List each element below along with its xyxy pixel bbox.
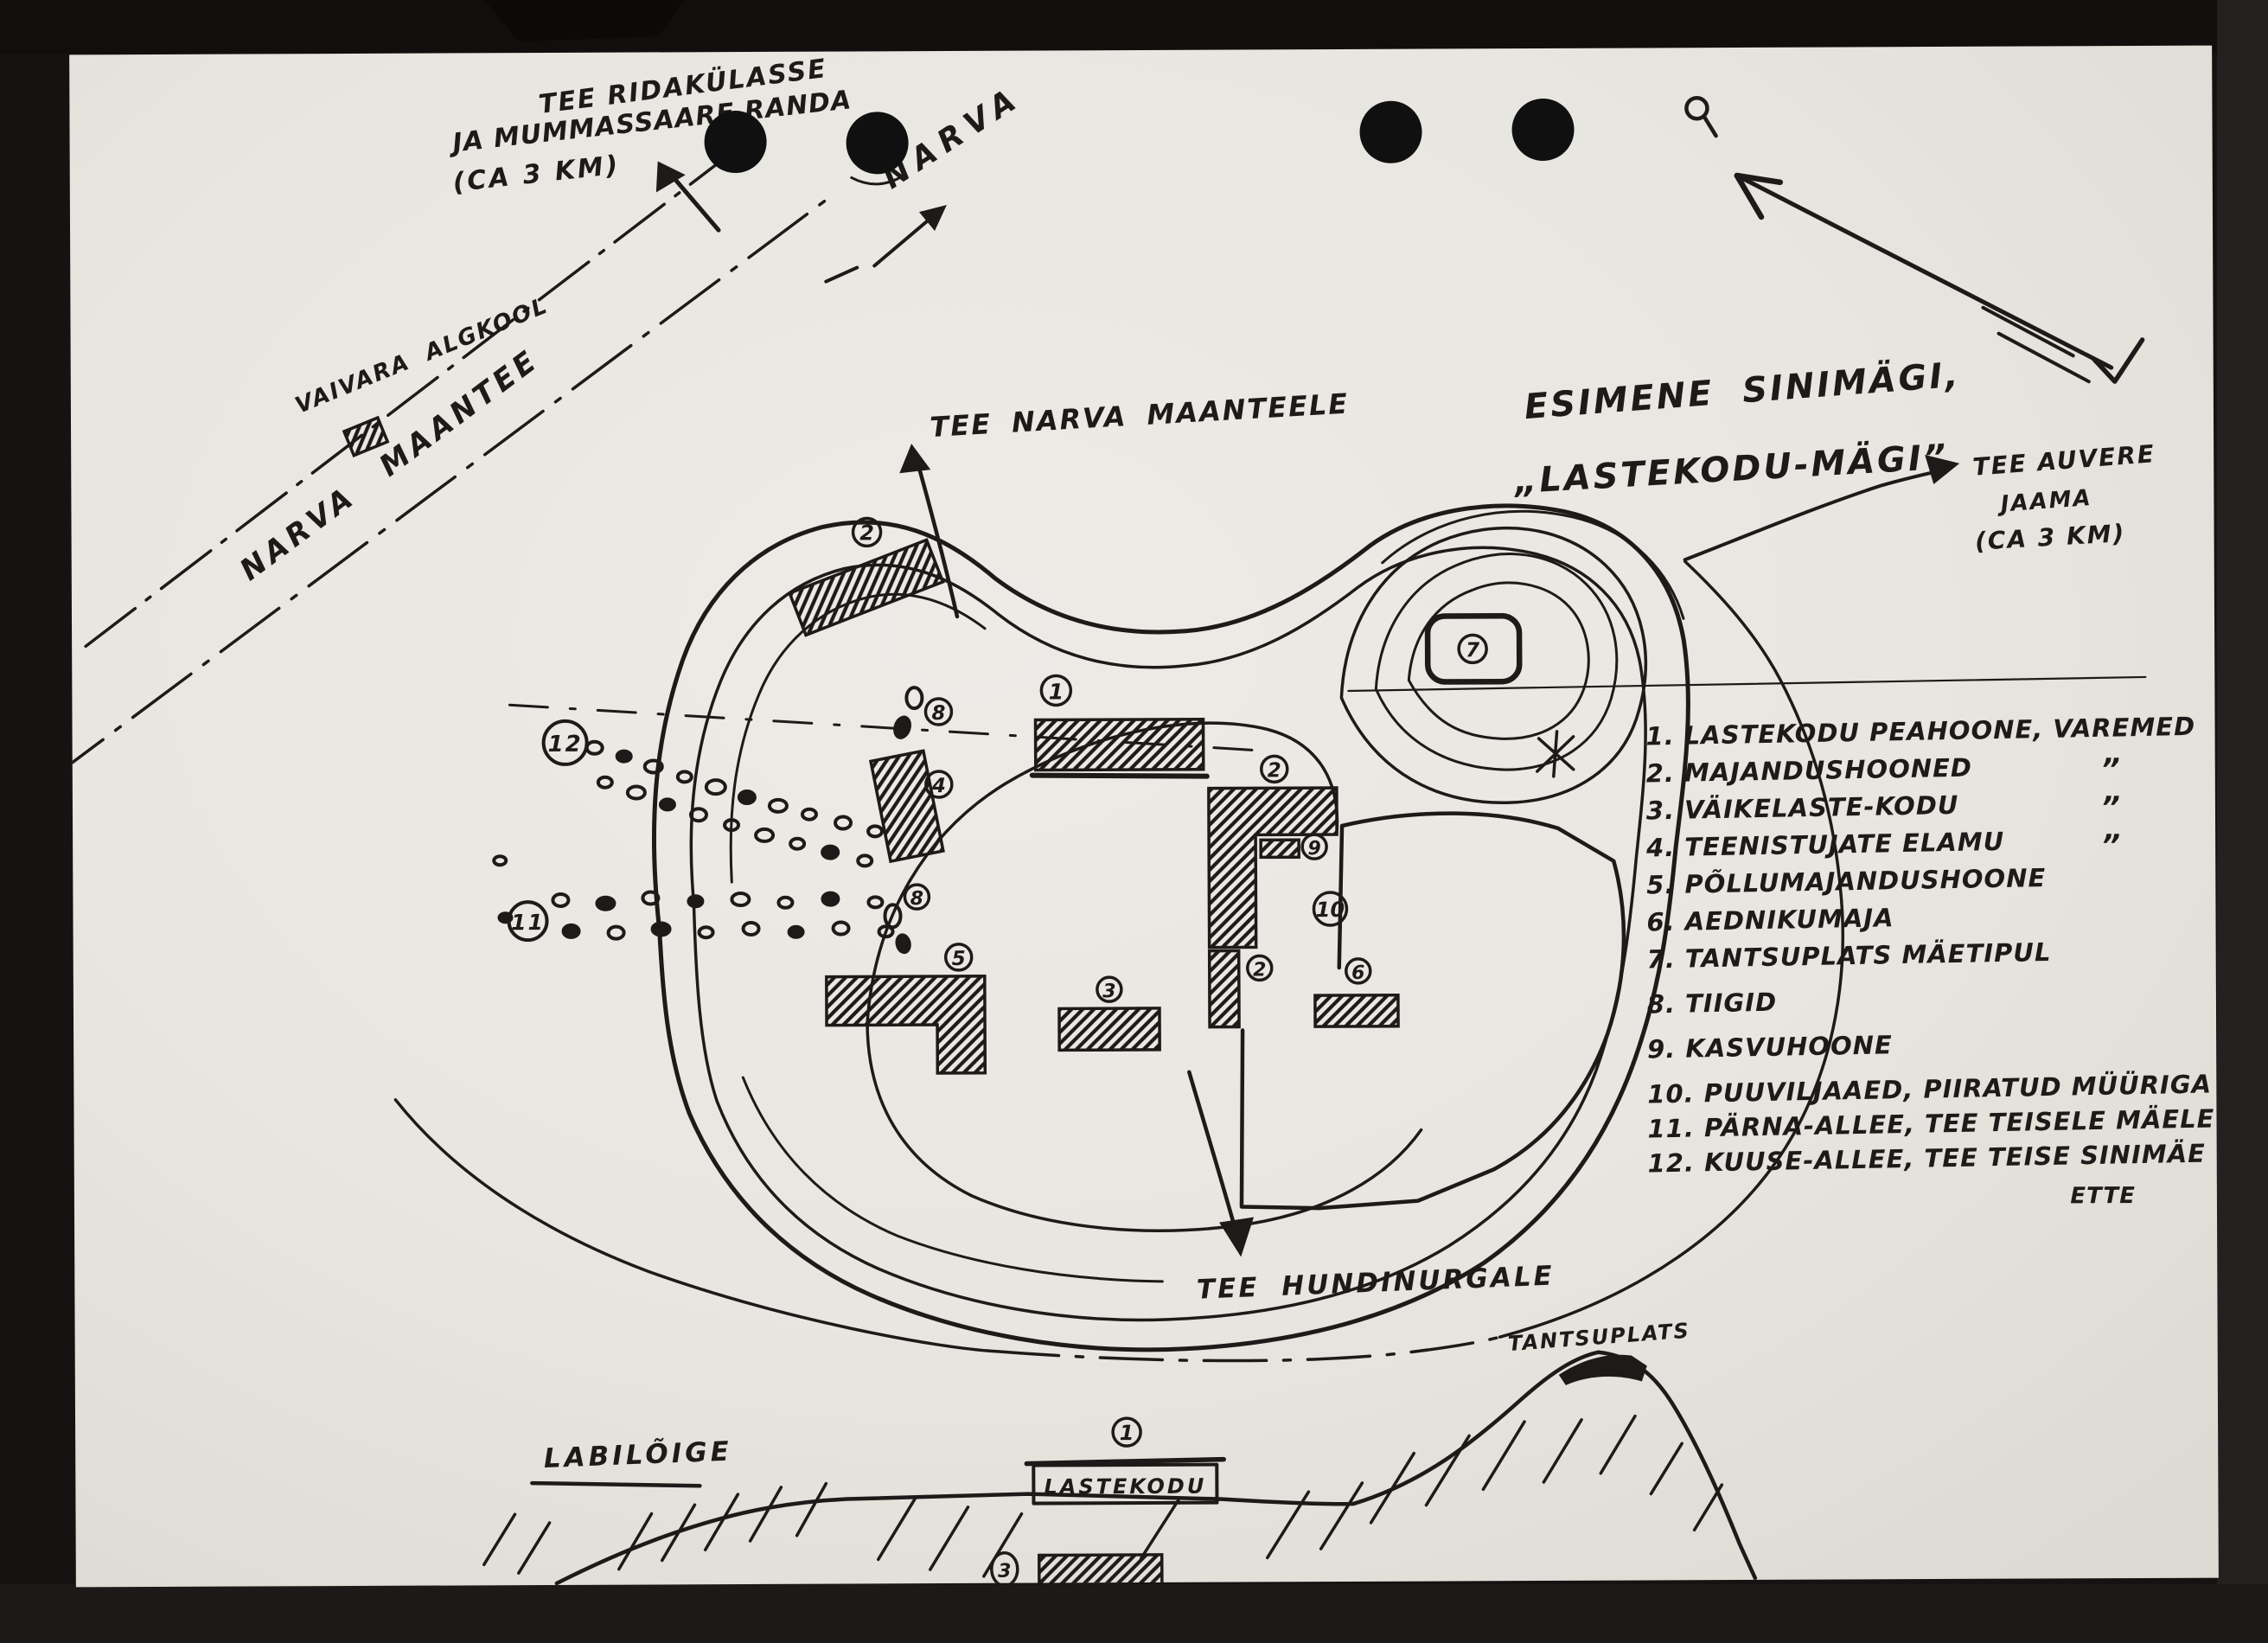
building-1-main [1036,719,1204,770]
svg-text:3: 3 [998,1561,1011,1582]
building-6 [1315,995,1398,1026]
svg-text:2: 2 [1268,759,1281,782]
legend-item-8: 8. TIIGID [1647,988,1778,1020]
lastekodu-building: LASTEKODU [1026,1460,1223,1504]
svg-text:8: 8 [910,888,923,910]
punch-hole-2 [846,112,908,174]
lastekodu-label: LASTEKODU [1044,1474,1206,1499]
svg-text:1: 1 [1049,679,1064,704]
svg-text:4: 4 [931,775,946,797]
legend-ditto-4: ” [2101,828,2120,863]
cross-section-bar3 [1039,1555,1162,1585]
scan-background-top [0,0,2268,54]
svg-text:11: 11 [511,910,545,935]
building-1-baseline [1032,775,1207,777]
punch-hole-1 [704,111,766,173]
building-9 [1261,840,1299,857]
svg-text:10: 10 [1316,898,1345,922]
legend-item-3: 3. VÄIKELASTE-KODU [1646,790,1959,826]
legend-ditto-2: ” [2101,752,2120,787]
svg-text:7: 7 [1466,639,1479,662]
legend-item-2: 2. MAJANDUSHOONED [1645,753,1972,789]
punch-hole-4 [1511,99,1574,161]
scan-background-right [2217,0,2268,1643]
building-2-low-bar [1210,951,1239,1027]
svg-text:6: 6 [1351,962,1364,984]
legend-ditto-3: ” [2101,790,2120,825]
svg-text:3: 3 [1102,981,1115,1002]
scanned-map-page: NARVA MAANTEE VAIVARA ALGKOOL TEE RIDAKÜ… [0,0,2268,1643]
legend-item-6: 6. AEDNIKUMAJA [1646,903,1894,937]
svg-text:1: 1 [1120,1421,1134,1445]
scan-background-bottom [0,1584,2268,1643]
svg-text:12: 12 [547,732,582,758]
punch-hole-3 [1359,101,1421,163]
legend-item-9: 9. KASVUHOONE [1647,1030,1893,1064]
svg-text:2: 2 [1253,959,1266,981]
building-3 [1059,1008,1160,1051]
legend-item-12-continuation: ETTE [2070,1183,2136,1209]
svg-text:8: 8 [931,702,945,725]
marker-orchard10: 10 [1313,892,1346,925]
svg-text:9: 9 [1307,838,1320,860]
marker-number: 2 [859,521,874,545]
scan-tape-notch [484,0,683,42]
svg-text:5: 5 [952,948,966,970]
